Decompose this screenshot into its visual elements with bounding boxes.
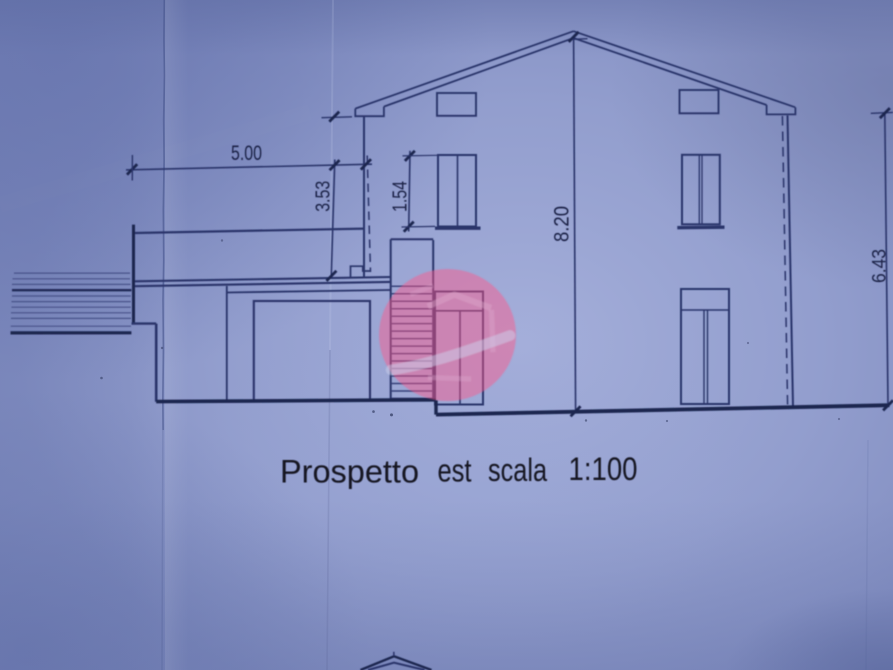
- svg-text:6.43: 6.43: [869, 249, 891, 283]
- svg-text:8.20: 8.20: [551, 206, 574, 242]
- svg-text:3.53: 3.53: [313, 181, 335, 212]
- svg-text:5.00: 5.00: [231, 142, 262, 165]
- svg-text:scala: scala: [488, 452, 548, 488]
- svg-text:Prospetto: Prospetto: [280, 454, 419, 490]
- svg-text:1.54: 1.54: [390, 181, 412, 212]
- svg-text:1:100: 1:100: [569, 451, 638, 487]
- svg-text:est: est: [438, 453, 472, 489]
